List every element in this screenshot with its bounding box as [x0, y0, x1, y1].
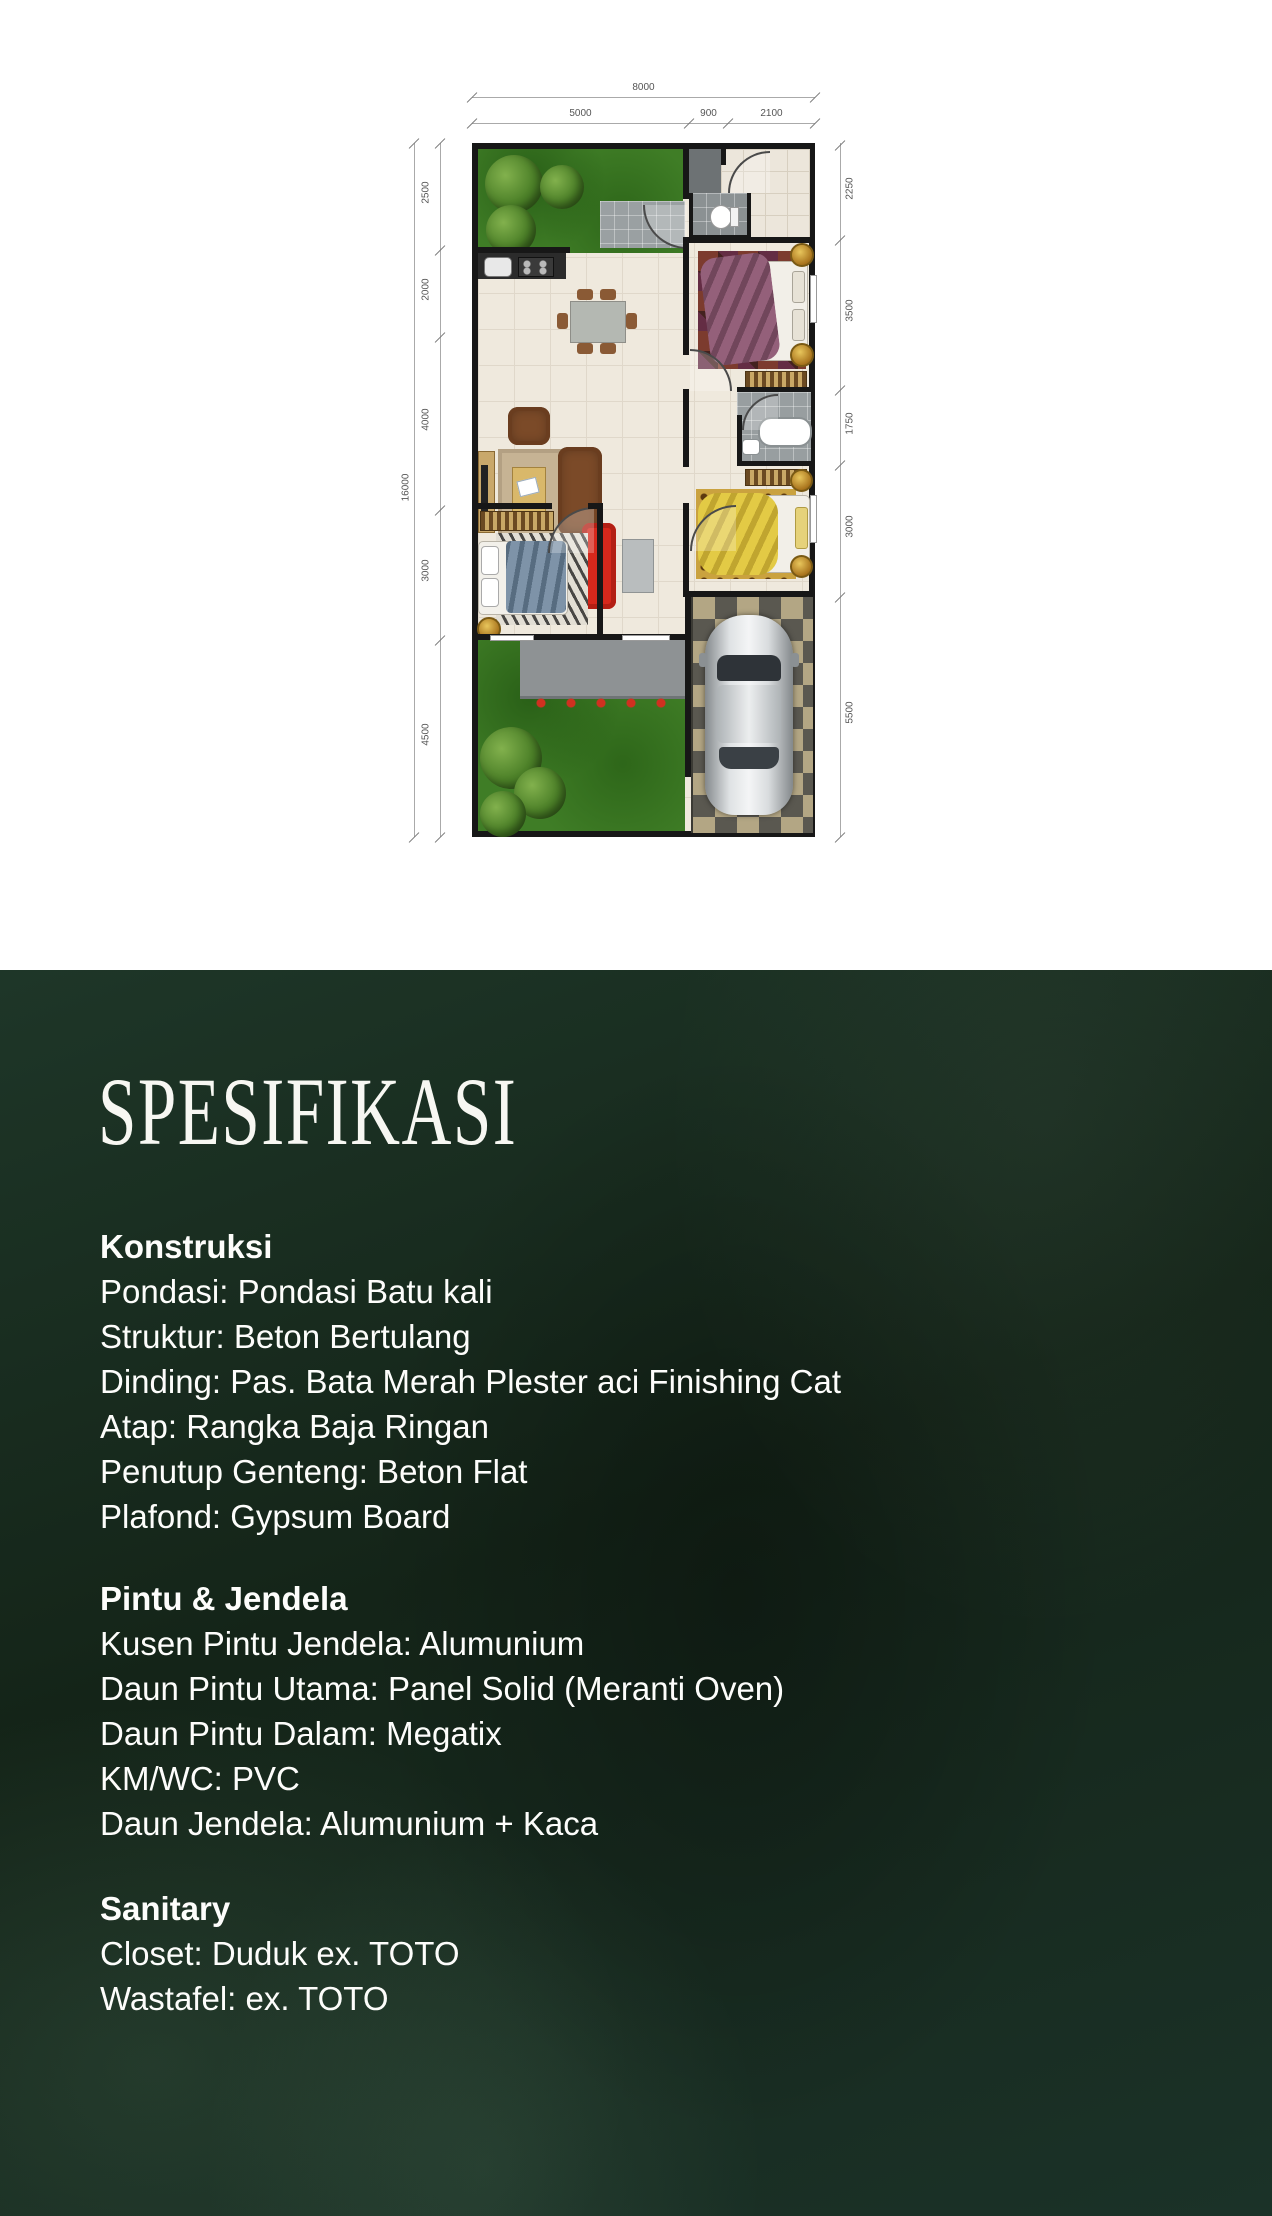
spec-item: Closet: Duduk ex. TOTO: [100, 1931, 1190, 1976]
spec-item: Atap: Rangka Baja Ringan: [100, 1404, 1190, 1449]
kitchen-sink: [484, 257, 512, 277]
dim-line-top-overall: [472, 97, 815, 98]
dim-label-16000: 16000: [401, 458, 412, 518]
media-table: [622, 539, 654, 593]
wall: [683, 149, 689, 199]
spec-item: Dinding: Pas. Bata Merah Plester aci Fin…: [100, 1359, 1190, 1404]
terrace-deck: [520, 640, 685, 699]
car-roof: [717, 685, 781, 743]
wall: [689, 193, 693, 239]
wall: [597, 503, 603, 640]
pillow: [792, 271, 805, 303]
wall: [683, 237, 689, 355]
spec-item: Daun Pintu Dalam: Megatix: [100, 1711, 1190, 1756]
wall: [721, 143, 726, 165]
dining-chair: [557, 313, 568, 329]
spec-item: Penutup Genteng: Beton Flat: [100, 1449, 1190, 1494]
dim-label-3000-right: 3000: [845, 497, 856, 557]
section-konstruksi: Konstruksi Pondasi: Pondasi Batu kali St…: [100, 1224, 1190, 1539]
pillow: [792, 309, 805, 341]
window: [622, 635, 670, 641]
wall: [683, 389, 689, 467]
spec-item: KM/WC: PVC: [100, 1756, 1190, 1801]
toilet: [710, 205, 732, 229]
section-heading: Sanitary: [100, 1886, 1190, 1931]
wall: [737, 415, 742, 461]
tree: [480, 791, 526, 837]
window: [810, 495, 817, 543]
flower-row: [535, 697, 685, 709]
dining-chair: [600, 289, 616, 300]
spec-item: Kusen Pintu Jendela: Alumunium: [100, 1621, 1190, 1666]
dim-label-3000-left: 3000: [421, 541, 432, 601]
pillow: [481, 546, 499, 575]
side-table: [790, 343, 814, 367]
wall: [689, 235, 751, 239]
spec-item: Daun Jendela: Alumunium + Kaca: [100, 1801, 1190, 1846]
dining-chair: [577, 289, 593, 300]
floor-plan: 8000 5000 900 2100 16000 2500 2000 4000 …: [400, 55, 870, 855]
specification-panel: SPESIFIKASI Konstruksi Pondasi: Pondasi …: [0, 970, 1272, 2216]
dim-label-5500: 5500: [845, 683, 856, 743]
car-mirror: [791, 653, 799, 667]
dim-line-top-segments: [472, 123, 815, 124]
dim-line-left-overall: [414, 143, 415, 837]
dining-table: [570, 301, 626, 343]
wall: [472, 247, 570, 253]
spec-item: Plafond: Gypsum Board: [100, 1494, 1190, 1539]
dim-label-2100: 2100: [728, 108, 815, 119]
section-pintu-jendela: Pintu & Jendela Kusen Pintu Jendela: Alu…: [100, 1576, 1190, 1846]
dim-label-8000: 8000: [472, 82, 815, 93]
wall: [747, 193, 751, 239]
toilet-tank: [730, 207, 739, 227]
dining-chair: [577, 343, 593, 354]
side-table: [790, 243, 814, 267]
dim-label-5000: 5000: [472, 108, 689, 119]
pillow: [795, 507, 808, 549]
dim-line-right-segments: [840, 143, 841, 837]
car-rear-window: [719, 747, 779, 769]
side-table: [790, 469, 813, 492]
spec-item: Daun Pintu Utama: Panel Solid (Meranti O…: [100, 1666, 1190, 1711]
car-mirror: [699, 653, 707, 667]
section-sanitary: Sanitary Closet: Duduk ex. TOTO Wastafel…: [100, 1886, 1190, 2021]
dim-label-4500: 4500: [421, 705, 432, 765]
dim-label-4000: 4000: [421, 390, 432, 450]
dim-label-2000: 2000: [421, 260, 432, 320]
window: [490, 635, 534, 641]
dim-label-2500: 2500: [421, 163, 432, 223]
armchair: [508, 407, 550, 445]
dresser: [480, 511, 554, 531]
dining-chair: [626, 313, 637, 329]
spec-item: Wastafel: ex. TOTO: [100, 1976, 1190, 2021]
tree: [540, 165, 584, 209]
spec-item: Pondasi: Pondasi Batu kali: [100, 1269, 1190, 1314]
wall: [472, 503, 552, 509]
wall: [683, 503, 689, 597]
pillow: [481, 578, 499, 607]
car-windshield: [717, 655, 781, 681]
dim-label-900: 900: [689, 108, 728, 119]
wall: [737, 461, 815, 466]
spec-title: SPESIFIKASI: [98, 1056, 517, 1167]
sink: [742, 439, 760, 455]
dresser: [745, 371, 807, 388]
window: [810, 275, 817, 323]
dim-label-2250: 2250: [845, 159, 856, 219]
wall: [685, 591, 815, 597]
dining-chair: [600, 343, 616, 354]
page: 8000 5000 900 2100 16000 2500 2000 4000 …: [0, 0, 1272, 2216]
side-table: [790, 555, 813, 578]
dim-label-1750: 1750: [845, 394, 856, 454]
stove: [518, 257, 554, 277]
dim-label-3500: 3500: [845, 281, 856, 341]
blanket-purple: [699, 251, 782, 367]
entry-porch: [685, 149, 721, 195]
spec-item: Struktur: Beton Bertulang: [100, 1314, 1190, 1359]
wall: [685, 597, 691, 777]
section-heading: Konstruksi: [100, 1224, 1190, 1269]
section-heading: Pintu & Jendela: [100, 1576, 1190, 1621]
wall: [737, 387, 815, 392]
